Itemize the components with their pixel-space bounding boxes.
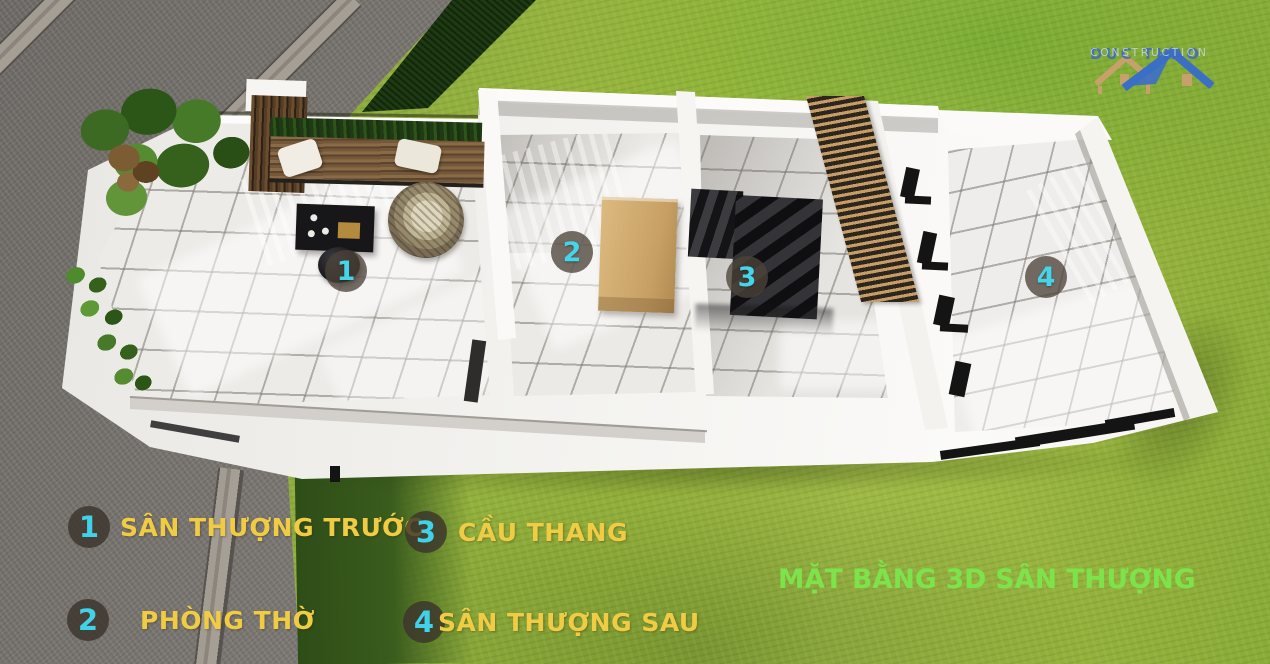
cup (308, 230, 315, 237)
floorplan-render-scene: 1 2 3 4 1 SÂN THƯỢNG TRƯỚC 2 PHÒNG THỜ 3… (0, 0, 1270, 664)
plan-marker-2: 2 (551, 231, 593, 273)
legend-label-worship-room: PHÒNG THỜ (140, 606, 315, 635)
legend-number: 3 (416, 515, 436, 549)
coffee-table (295, 204, 375, 253)
legend-number: 1 (79, 510, 99, 544)
staircase-shadow (695, 304, 834, 337)
legend-circle-3: 3 (405, 511, 447, 553)
company-logo: DUC THAO CONSTRUCTION (1090, 44, 1230, 140)
railing-segment (905, 195, 931, 204)
plan-marker-number: 4 (1037, 262, 1056, 293)
logo-company-subtitle: CONSTRUCTION (1090, 46, 1209, 59)
road-curb-strip (0, 0, 85, 82)
legend-number: 4 (414, 605, 434, 639)
page-title: MẶT BẰNG 3D SÂN THƯỢNG (778, 564, 1150, 595)
legend-label-front-terrace: SÂN THƯỢNG TRƯỚC (120, 513, 423, 542)
facade-post (330, 466, 340, 482)
dried-plant (98, 128, 170, 200)
plan-marker-number: 1 (337, 256, 356, 287)
plan-marker-1: 1 (325, 250, 367, 292)
plan-marker-4: 4 (1025, 256, 1067, 298)
cup (322, 228, 329, 235)
legend-label-staircase: CẦU THANG (458, 518, 628, 547)
cup (310, 214, 317, 221)
railing-segment (940, 323, 968, 332)
tray (338, 222, 361, 239)
plan-marker-number: 3 (738, 262, 757, 293)
railing-segment (922, 261, 948, 270)
legend-circle-2: 2 (67, 599, 109, 641)
altar-table (598, 197, 678, 314)
staircase (685, 189, 823, 322)
plan-marker-number: 2 (563, 237, 582, 268)
legend-number: 2 (78, 603, 98, 637)
parapet-edge-line (130, 396, 707, 432)
plan-marker-3: 3 (726, 256, 768, 298)
legend-label-rear-terrace: SÂN THƯỢNG SAU (438, 608, 700, 637)
legend-circle-1: 1 (68, 506, 110, 548)
